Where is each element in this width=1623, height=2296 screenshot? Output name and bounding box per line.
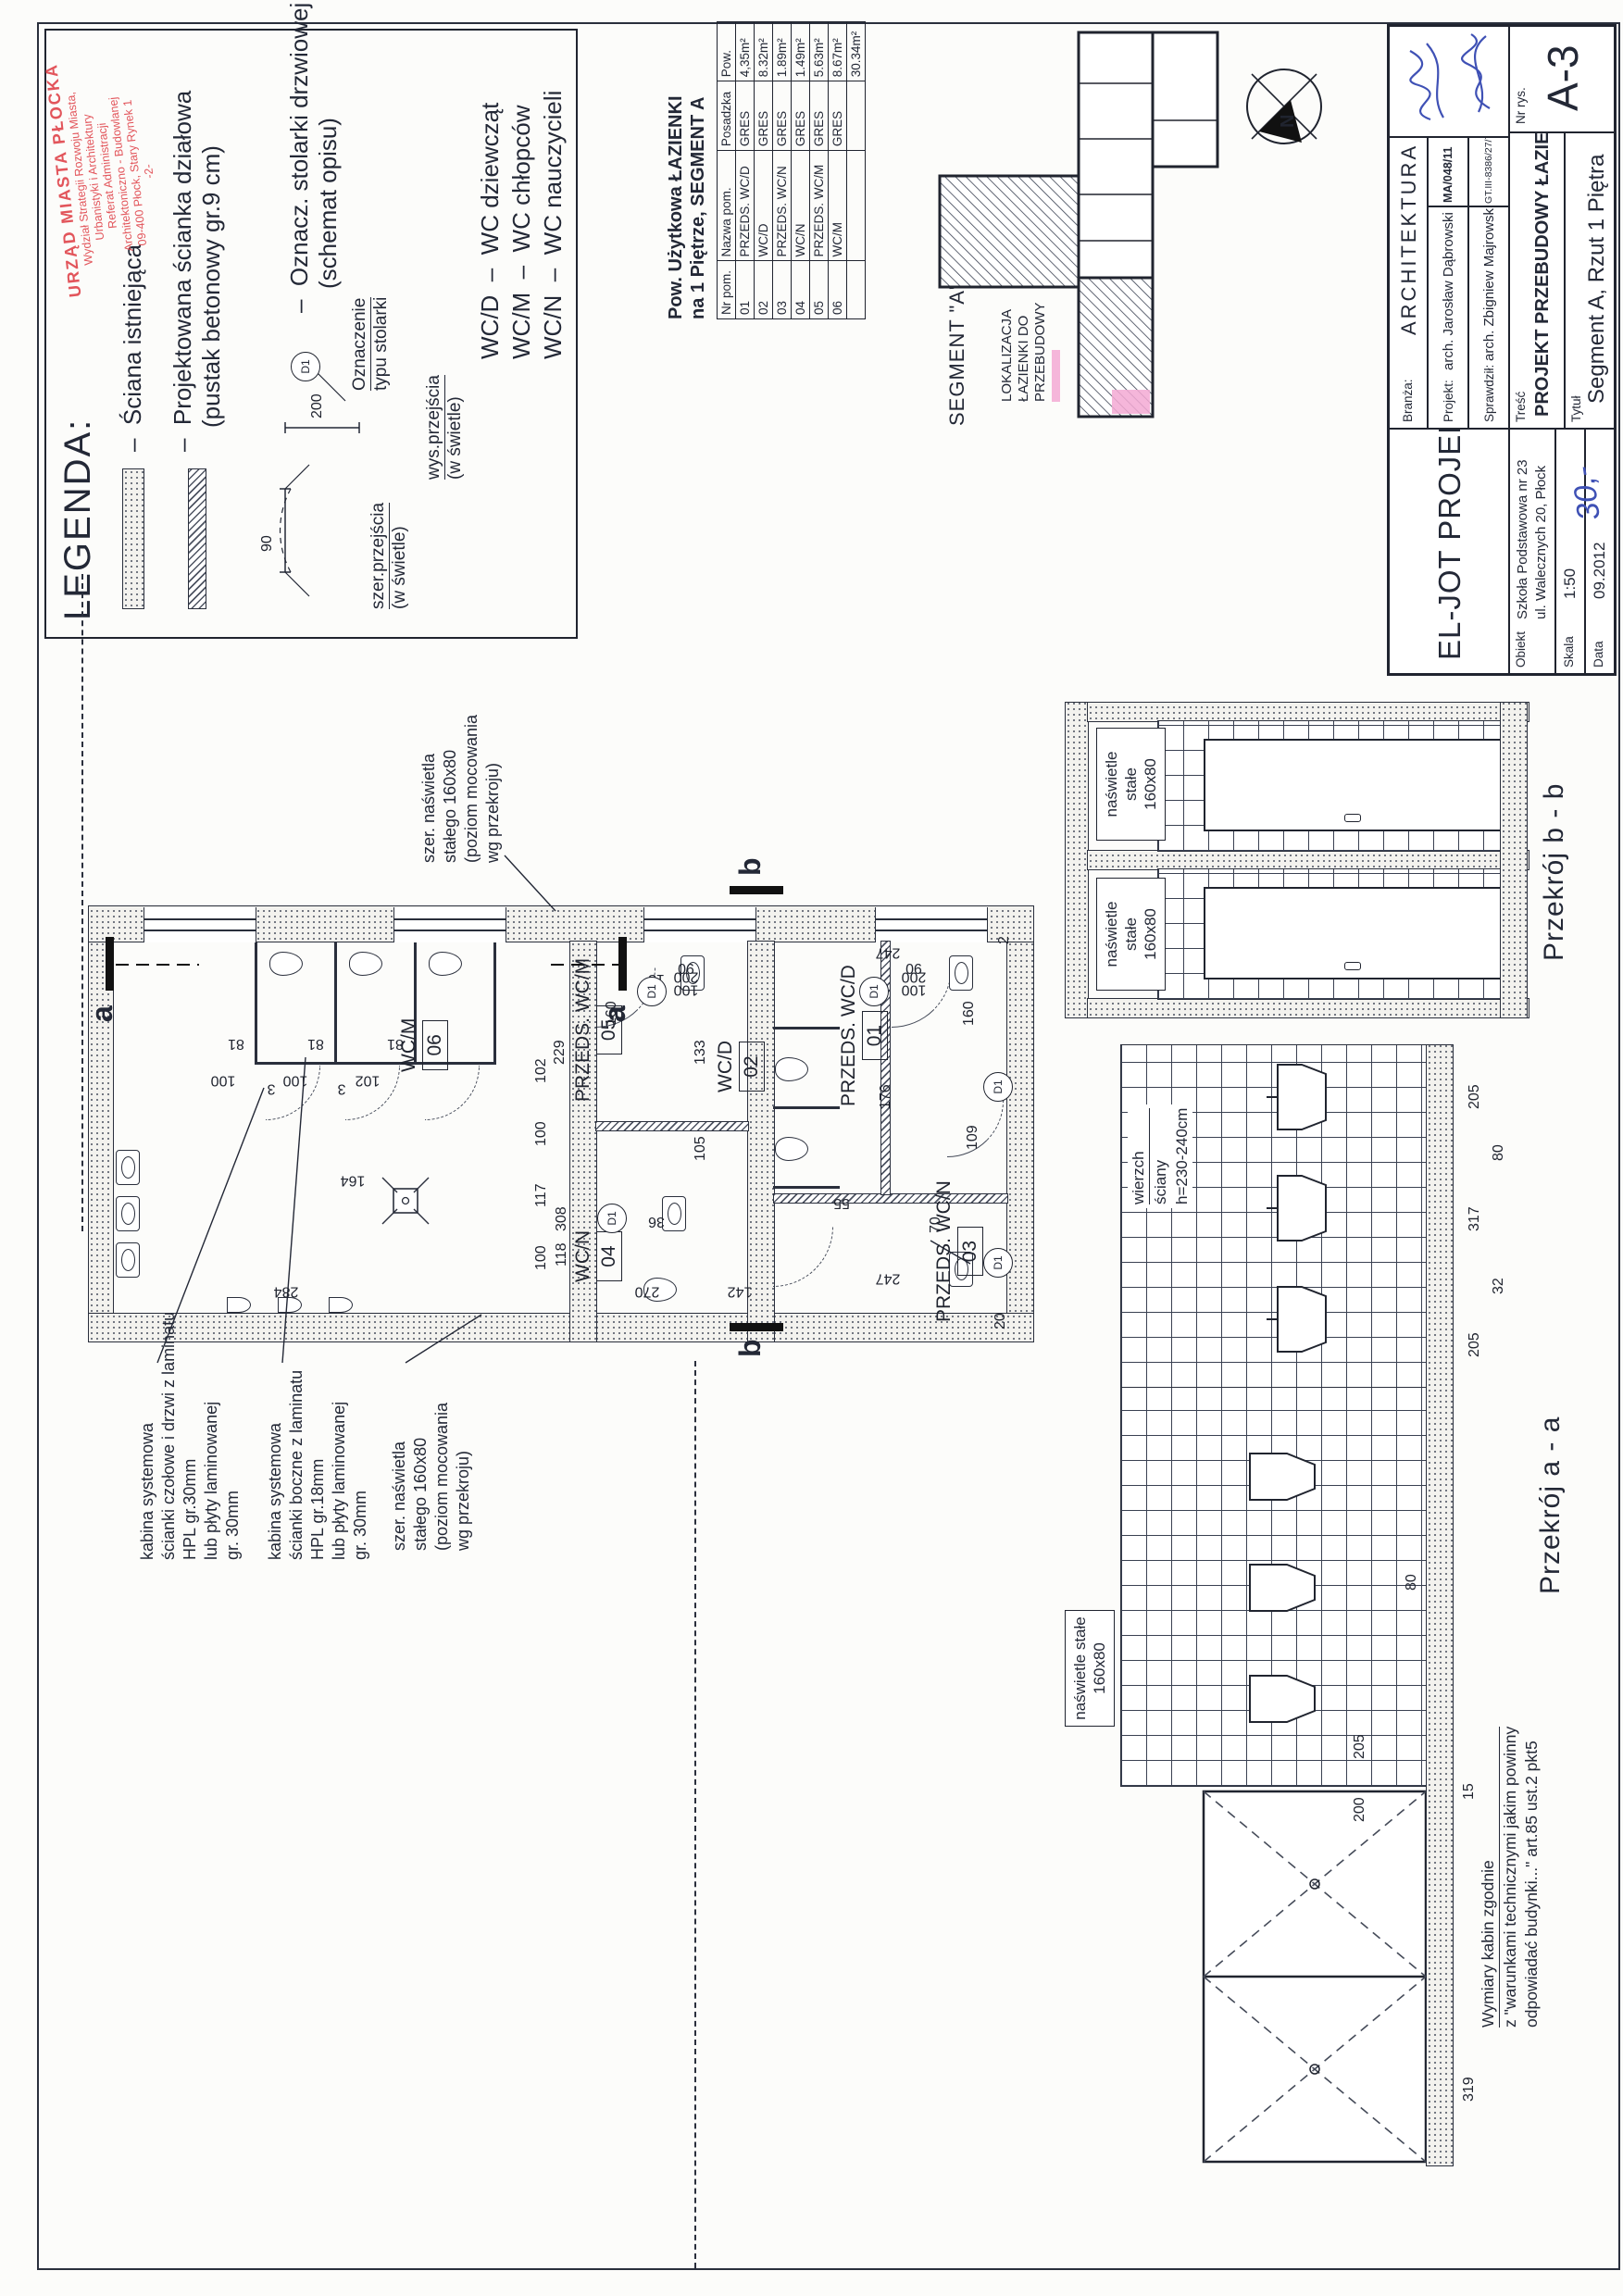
dimension-label: 100 — [533, 1121, 550, 1146]
dimension-label: 20 — [993, 1313, 1009, 1329]
dimension-label: 247 — [876, 1270, 901, 1287]
dimension-label: 102 — [356, 1072, 381, 1089]
dimension-label: 80 — [1404, 1574, 1420, 1591]
dimension-label: 80 — [1491, 1144, 1507, 1161]
room-label-04: WC/N04 — [572, 1230, 622, 1282]
dimension-label: 205 — [1467, 1332, 1483, 1357]
dimension-label: 100 — [211, 1072, 236, 1089]
dimension-label: 15 — [1461, 1783, 1478, 1800]
room-number-box: 01 — [862, 1011, 888, 1060]
dimension-label: 247 — [876, 944, 901, 961]
dimension-label: 3 — [268, 1080, 276, 1097]
annotation-note: szer. naświetlastałego 160x80(poziom moc… — [418, 715, 504, 863]
dimension-label: 100 — [533, 1245, 550, 1270]
dimension-label: 32 — [1491, 1278, 1507, 1294]
dimension-label: 105 — [693, 1136, 709, 1161]
dimension-label: 90 — [678, 959, 694, 976]
room-label-02: WC/D02 — [715, 1041, 765, 1092]
landscape-drawing-canvas: LEGENDA: – Ściana istniejąca – Projektow… — [0, 0, 1623, 2296]
dimension-label: 102 — [533, 1058, 550, 1083]
room-label-05: PRZEDS. WC/M05 — [572, 958, 622, 1102]
room-number-box: 06 — [422, 1020, 448, 1069]
door-type-marker: D1 — [859, 977, 889, 1006]
dimension-label: 205 — [1352, 1734, 1368, 1759]
dimension-label: 317 — [1467, 1206, 1483, 1231]
dimension-label: 36 — [648, 1213, 665, 1229]
dimension-label: 270 — [635, 1283, 660, 1300]
dimension-label: 229 — [552, 1040, 568, 1065]
door-type-marker: D1 — [637, 977, 667, 1006]
room-label-03: PRZEDS. WC/N03 — [933, 1180, 983, 1322]
dimension-label: 81 — [228, 1035, 244, 1052]
room-number-box: 02 — [739, 1042, 765, 1091]
annotation-note: kabina systemowaścianki boczne z laminat… — [265, 1370, 371, 1560]
dimension-label: 284 — [274, 1283, 299, 1300]
door-type-marker: D1 — [597, 1204, 627, 1233]
dimension-label: 90 — [905, 959, 922, 976]
dimension-label: 3 — [338, 1080, 346, 1097]
room-number-box: 05 — [596, 1005, 622, 1054]
dimension-label: 118 — [554, 1242, 570, 1267]
door-type-marker: D1 — [983, 1072, 1013, 1102]
dimension-label: 142 — [728, 1283, 753, 1300]
dimension-label: 308 — [554, 1206, 570, 1231]
dimension-label: 2 — [996, 936, 1013, 944]
generated-annotations: 2841641003100310281818110011710010230827… — [0, 0, 1623, 2296]
dimension-label: 205 — [1467, 1084, 1483, 1109]
dimension-label: 55 — [833, 1194, 850, 1211]
annotation-note: kabina systemowaścianki czołowe i drzwi … — [137, 1312, 243, 1560]
dimension-label: 117 — [533, 1183, 550, 1207]
annotation-note: szer. naświetlastałego 160x80(poziom moc… — [389, 1403, 474, 1551]
dimension-label: 109 — [965, 1125, 981, 1150]
dimension-label: 200 — [1352, 1797, 1368, 1822]
scanned-drawing-page: LEGENDA: – Ściana istniejąca – Projektow… — [0, 0, 1623, 2296]
dimension-label: 164 — [341, 1172, 366, 1189]
dimension-label: 319 — [1461, 2077, 1478, 2102]
dimension-label: 100 — [283, 1072, 308, 1089]
room-label-06: WC/M06 — [398, 1018, 448, 1072]
dimension-label: 160 — [961, 1001, 978, 1026]
room-number-box: 04 — [596, 1231, 622, 1280]
dimension-label: 81 — [307, 1035, 324, 1052]
door-type-marker: D1 — [983, 1248, 1013, 1278]
room-number-box: 03 — [957, 1227, 983, 1276]
dimension-label: 133 — [693, 1040, 709, 1065]
